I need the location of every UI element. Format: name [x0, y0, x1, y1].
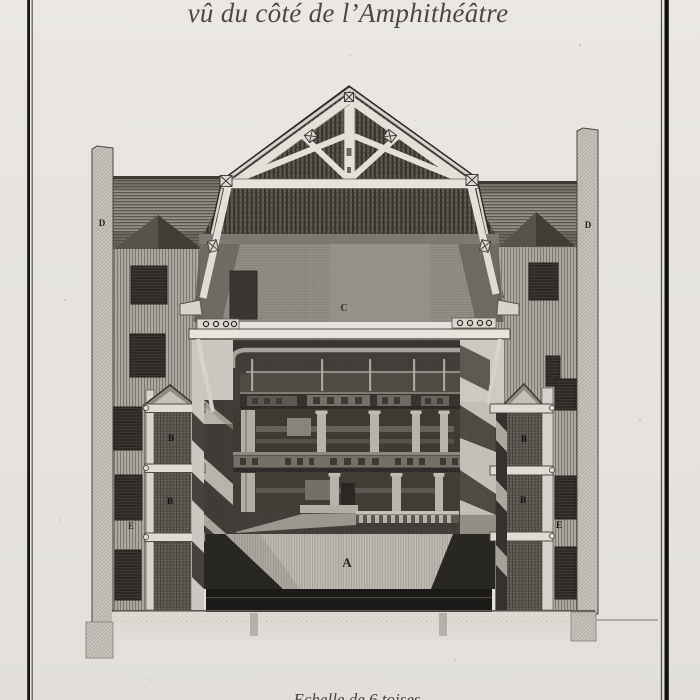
svg-text:vû du côté de l’Amphithéâtre: vû du côté de l’Amphithéâtre [188, 0, 509, 28]
svg-text:A: A [342, 555, 352, 570]
svg-text:B: B [521, 434, 527, 444]
svg-text:E: E [128, 521, 134, 531]
svg-text:B: B [168, 433, 174, 443]
svg-text:E: E [556, 520, 562, 530]
svg-text:Echelle de 6 toises: Echelle de 6 toises [293, 690, 421, 700]
svg-text:B: B [520, 495, 526, 505]
svg-text:D: D [585, 220, 592, 230]
svg-text:D: D [99, 218, 106, 228]
svg-text:B: B [167, 496, 173, 506]
